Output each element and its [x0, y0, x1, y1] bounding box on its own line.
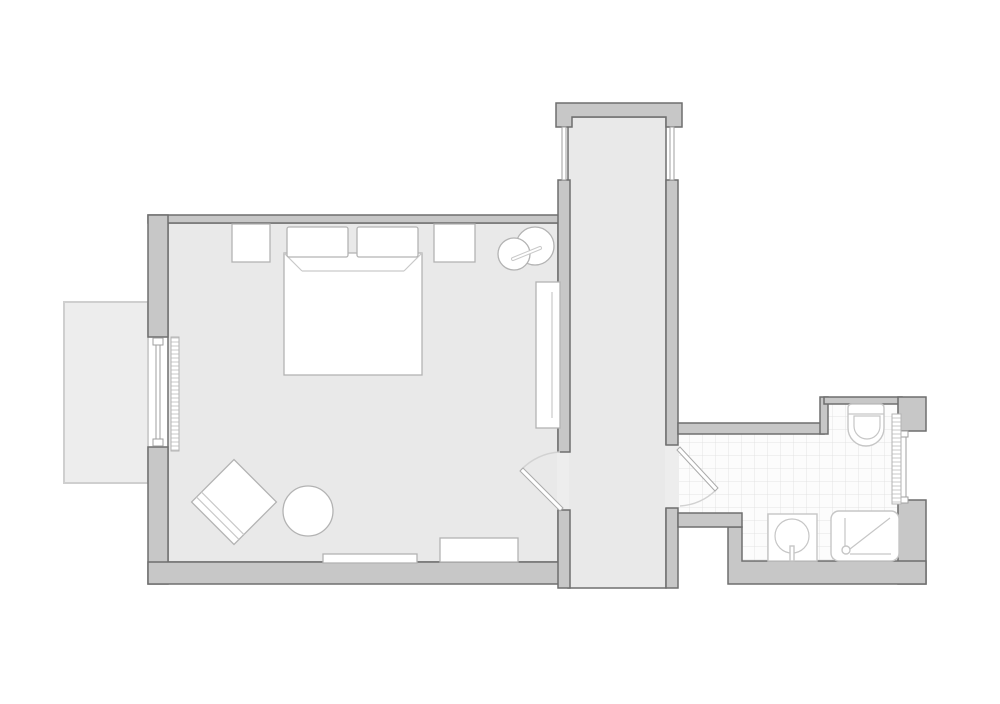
shower-drain [842, 546, 850, 554]
bedroom-door-opening [557, 452, 569, 510]
bedroom-west-window-frame-bottom [153, 439, 163, 446]
pillow-left [287, 227, 348, 257]
bathroom-entry-south-wall [678, 513, 742, 527]
round-side-table [283, 486, 333, 536]
pillow-right [357, 227, 418, 257]
bathroom-door-opening [665, 445, 679, 508]
balcony [64, 302, 148, 483]
nightstand-left [232, 224, 270, 262]
corridor-east-wall-lower [666, 508, 678, 588]
bedroom-north-wall [148, 215, 568, 223]
corridor-north-window-right [670, 127, 674, 180]
nightstand-right [434, 224, 475, 262]
bathroom-towel-radiator [892, 414, 901, 504]
corridor-floor [568, 117, 666, 588]
bedroom-west-wall-upper [148, 215, 168, 337]
bathroom-north-wall-left [678, 423, 824, 434]
bench [440, 538, 518, 562]
bathroom-north-wall-right [824, 397, 902, 404]
bedroom-south-wall [148, 562, 568, 584]
bathroom-northeast-corner [898, 397, 926, 431]
bedroom-west-window-glazing [156, 345, 160, 439]
basin-tap [790, 546, 794, 561]
bedroom-window-radiator [171, 337, 179, 451]
wardrobe-console [536, 282, 560, 428]
corridor-north-window-left [562, 127, 566, 180]
floor-plan-canvas [0, 0, 1000, 704]
corridor-east-wall-upper [666, 180, 678, 445]
bedroom-west-window-frame-top [153, 338, 163, 345]
baseboard-radiator [323, 554, 417, 563]
floor-plan-page [0, 0, 1000, 704]
bedroom-corridor-wall-lower [558, 510, 570, 588]
toilet [848, 404, 884, 446]
wash-basin-vanity [768, 514, 817, 561]
shower-tray [831, 511, 899, 561]
